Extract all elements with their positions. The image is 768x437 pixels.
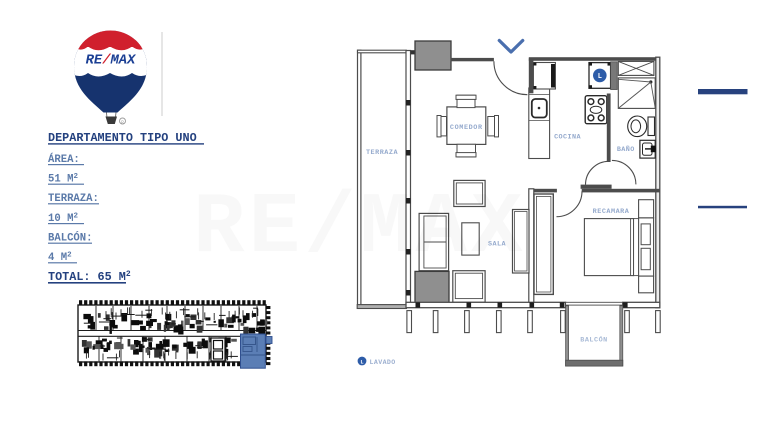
svg-text:RE/MAX: RE/MAX [193,179,527,277]
svg-text:TOTAL: 65 M2: TOTAL: 65 M2 [48,270,131,284]
svg-text:RECAMARA: RECAMARA [593,208,630,216]
svg-text:DEPARTAMENTO TIPO UNO: DEPARTAMENTO TIPO UNO [48,131,197,145]
svg-text:BALCÓN:: BALCÓN: [48,230,93,244]
svg-text:BALCÓN: BALCÓN [580,335,607,345]
svg-text:COMEDOR: COMEDOR [450,124,483,132]
svg-text:LAVADO: LAVADO [370,359,396,366]
svg-text:COCINA: COCINA [554,134,581,142]
svg-text:L: L [598,73,602,81]
svg-text:RE/MAX: RE/MAX [86,53,137,69]
svg-text:TERRAZA: TERRAZA [366,149,398,157]
svg-text:BAÑO: BAÑO [617,145,635,154]
svg-text:R: R [121,119,124,125]
svg-text:ÁREA:: ÁREA: [48,152,80,166]
